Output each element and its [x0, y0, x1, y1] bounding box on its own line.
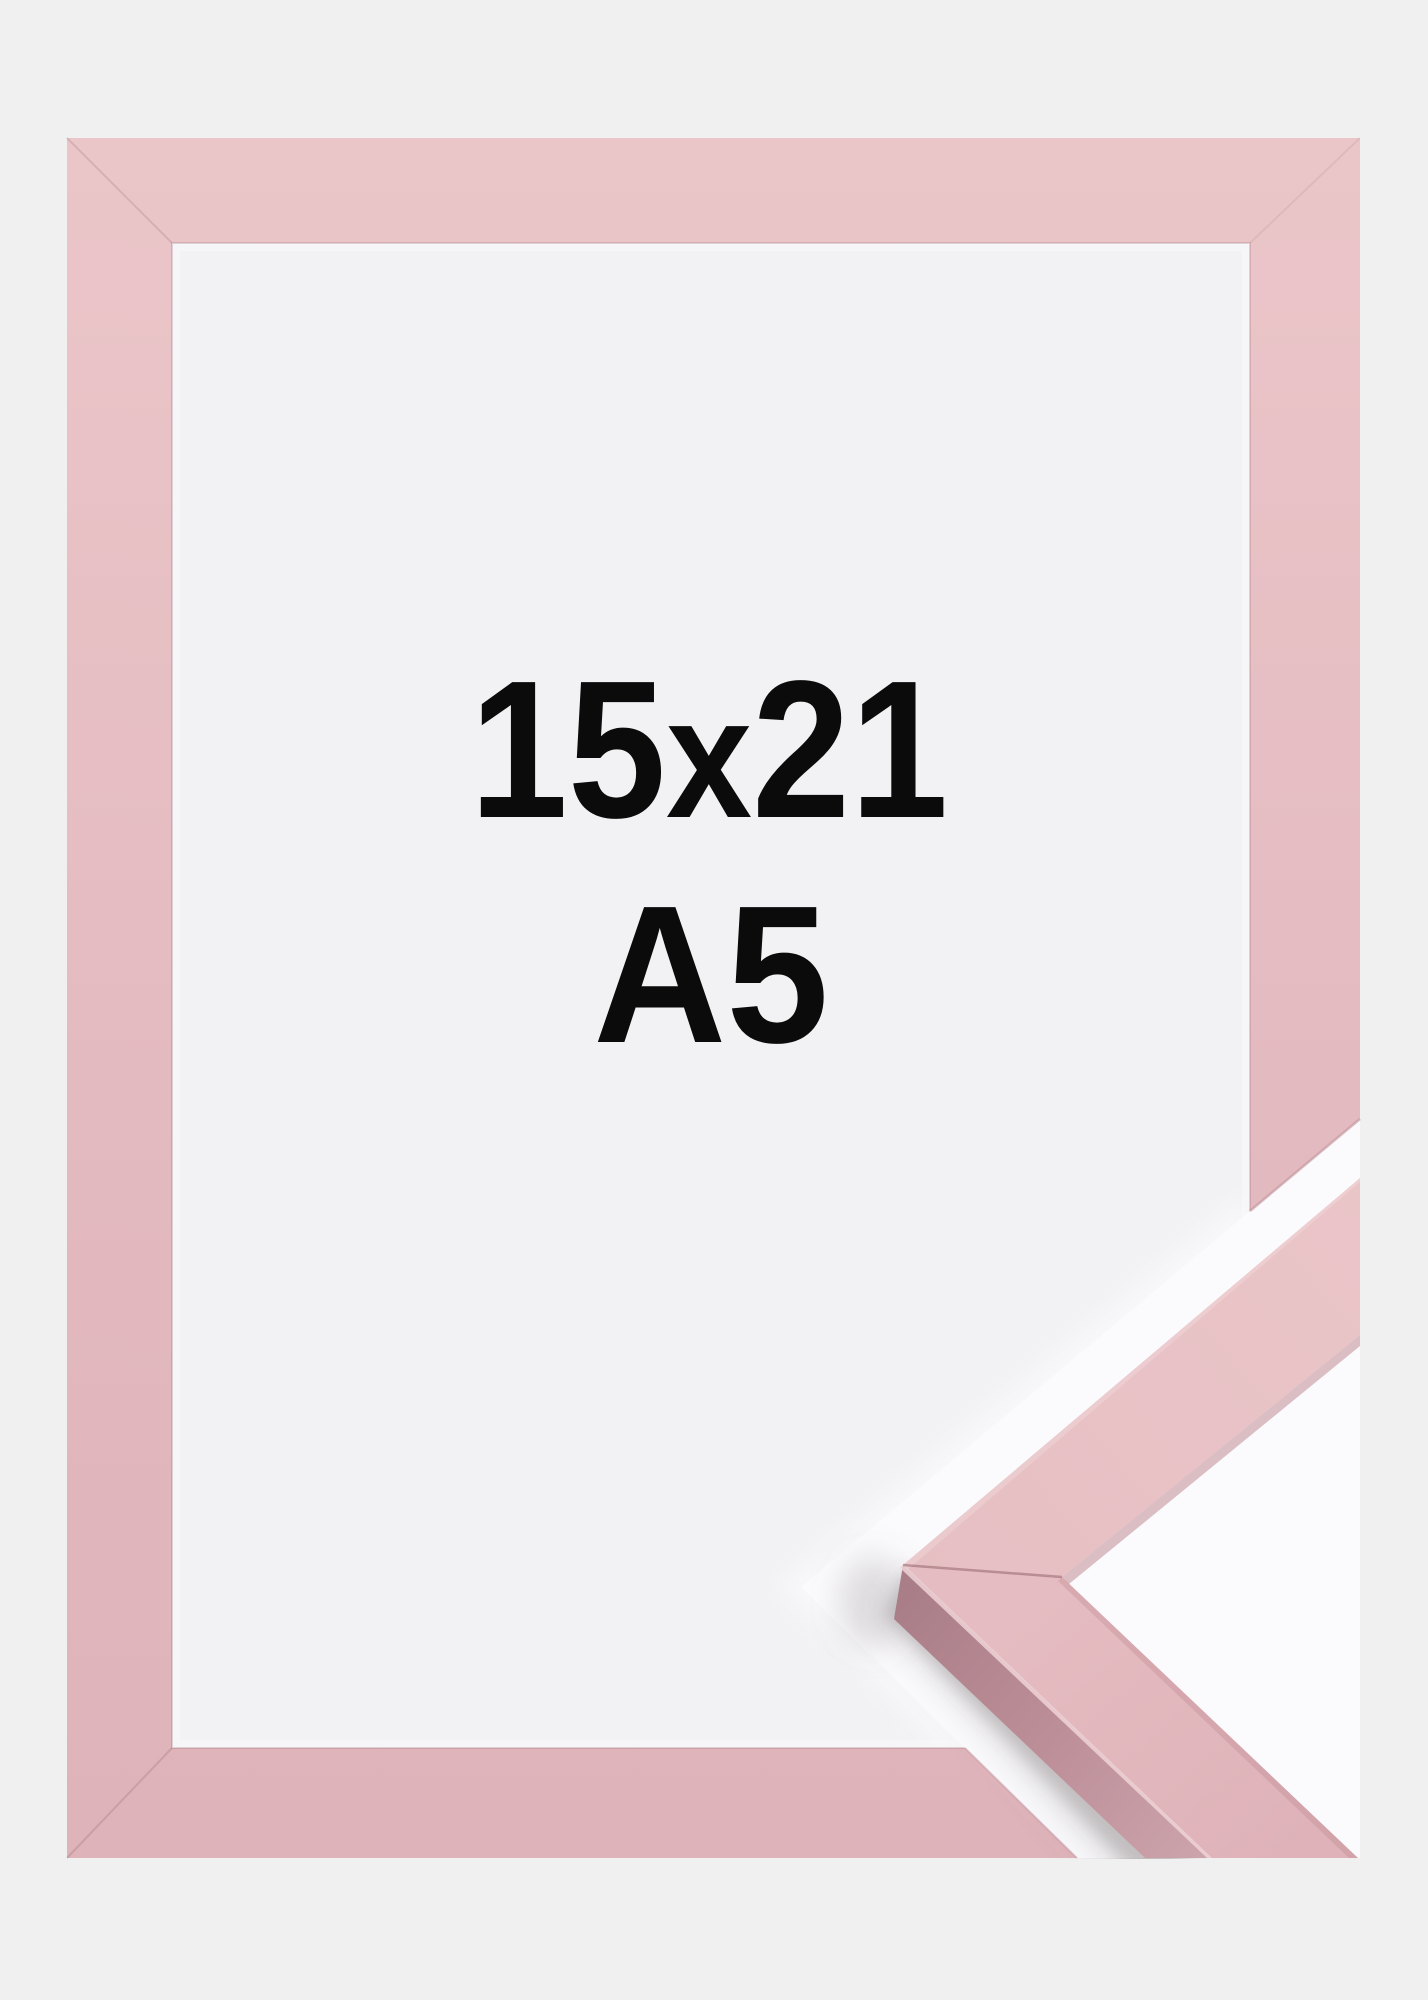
svg-text:15x21: 15x21 — [470, 639, 948, 859]
svg-text:A5: A5 — [593, 866, 829, 1084]
